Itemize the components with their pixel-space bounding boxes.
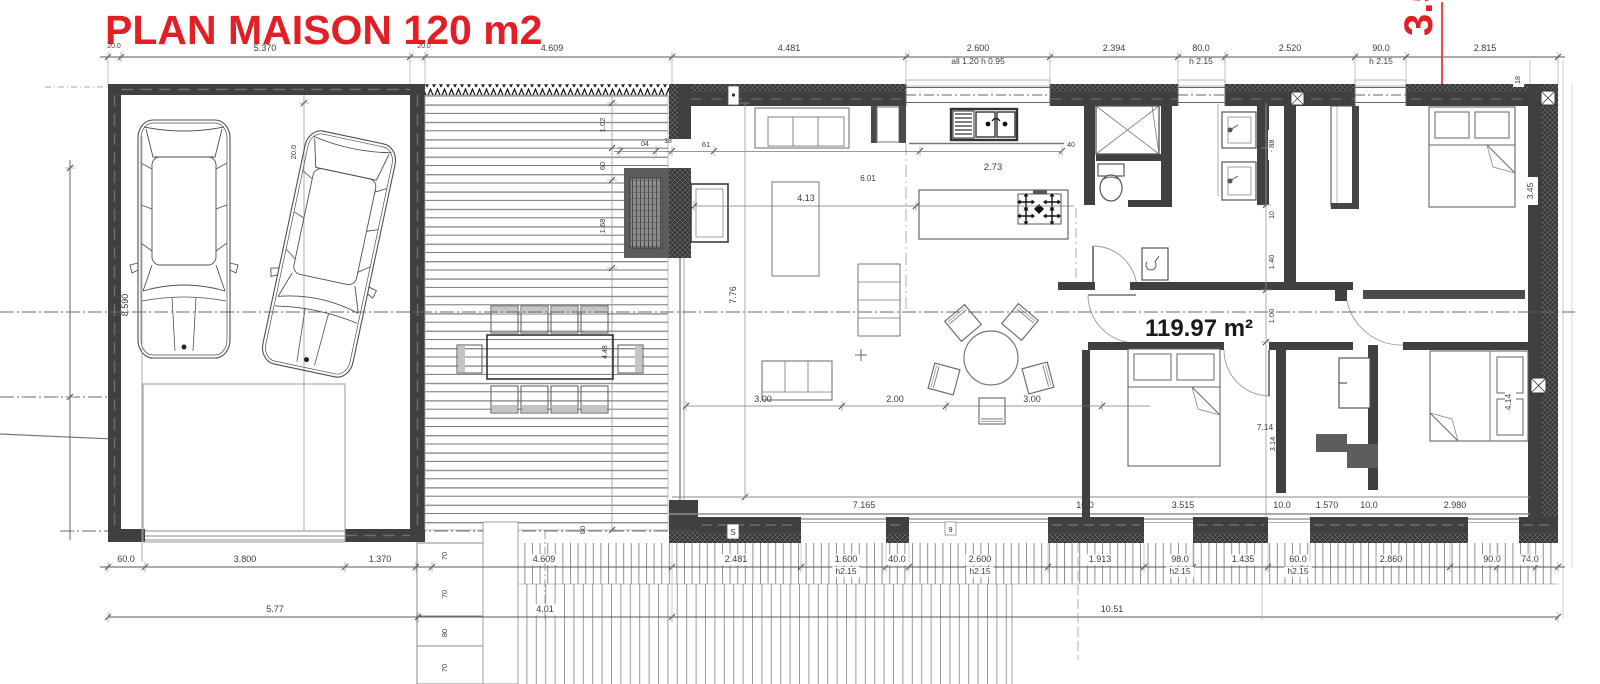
svg-text:2.481: 2.481 xyxy=(725,554,748,564)
svg-text:1.370: 1.370 xyxy=(369,554,392,564)
svg-text:2.980: 2.980 xyxy=(1444,500,1467,510)
svg-text:40.0: 40.0 xyxy=(888,554,906,564)
svg-text:4.14: 4.14 xyxy=(1503,393,1513,410)
svg-text:10.0: 10.0 xyxy=(1360,500,1378,510)
svg-text:3.00: 3.00 xyxy=(754,394,772,404)
svg-text:3.00: 3.00 xyxy=(1023,394,1041,404)
svg-text:10: 10 xyxy=(1269,342,1276,350)
svg-text:40: 40 xyxy=(1067,142,1075,149)
svg-text:5.77: 5.77 xyxy=(266,604,284,614)
svg-text:3.800: 3.800 xyxy=(234,554,257,564)
svg-text:80: 80 xyxy=(578,526,587,534)
svg-text:2.600: 2.600 xyxy=(969,554,992,564)
svg-text:3.515: 3.515 xyxy=(1172,500,1195,510)
svg-text:98.0: 98.0 xyxy=(1171,554,1189,564)
svg-text:7.14: 7.14 xyxy=(1257,422,1274,432)
svg-text:60.0: 60.0 xyxy=(117,554,135,564)
svg-text:h2.15: h2.15 xyxy=(835,566,857,576)
svg-text:10.51: 10.51 xyxy=(1101,604,1124,614)
svg-text:9: 9 xyxy=(948,525,952,534)
svg-text:04: 04 xyxy=(641,141,649,148)
svg-text:PLAN MAISON 120 m2: PLAN MAISON 120 m2 xyxy=(105,7,542,53)
svg-text:h2.15: h2.15 xyxy=(969,566,991,576)
svg-text:1.435: 1.435 xyxy=(1232,554,1255,564)
svg-text:4.609: 4.609 xyxy=(541,43,564,53)
svg-text:1.913: 1.913 xyxy=(1089,554,1112,564)
svg-text:18: 18 xyxy=(664,138,672,145)
svg-text:10: 10 xyxy=(1269,211,1276,219)
svg-text:2.860: 2.860 xyxy=(1380,554,1403,564)
svg-text:70: 70 xyxy=(440,664,449,672)
svg-text:1.00: 1.00 xyxy=(1267,309,1276,324)
svg-text:h2.15: h2.15 xyxy=(1287,566,1309,576)
svg-text:10.0: 10.0 xyxy=(1273,500,1291,510)
svg-text:1.40: 1.40 xyxy=(1267,255,1276,270)
svg-text:h 2.15: h 2.15 xyxy=(1189,56,1213,66)
svg-text:18: 18 xyxy=(1515,76,1522,84)
svg-text:4.48: 4.48 xyxy=(602,345,609,359)
svg-text:3.45: 3.45 xyxy=(1525,182,1535,199)
svg-text:4.13: 4.13 xyxy=(797,193,815,203)
svg-text:60: 60 xyxy=(598,162,607,170)
svg-text:61: 61 xyxy=(702,140,710,149)
svg-text:2.73: 2.73 xyxy=(984,162,1003,173)
svg-text:3.5: 3.5 xyxy=(1397,0,1441,36)
svg-text:1.02: 1.02 xyxy=(598,118,607,133)
svg-text:8.590: 8.590 xyxy=(120,294,130,317)
svg-text:4.609: 4.609 xyxy=(533,554,556,564)
svg-text:h2.15: h2.15 xyxy=(1169,566,1191,576)
svg-text:2.600: 2.600 xyxy=(967,43,990,53)
svg-text:2.394: 2.394 xyxy=(1103,43,1126,53)
svg-text:90.0: 90.0 xyxy=(1372,43,1390,53)
svg-text:90: 90 xyxy=(1085,196,1093,203)
svg-text:all 1.20 h 0.95: all 1.20 h 0.95 xyxy=(951,56,1005,66)
svg-text:1.570: 1.570 xyxy=(1316,500,1339,510)
svg-text:90.0: 90.0 xyxy=(1483,554,1501,564)
svg-text:- 88: - 88 xyxy=(1267,140,1276,153)
svg-text:1.68: 1.68 xyxy=(598,219,607,234)
svg-text:20.0: 20.0 xyxy=(417,43,431,50)
svg-text:7.165: 7.165 xyxy=(853,500,876,510)
svg-text:10.0: 10.0 xyxy=(1076,500,1094,510)
svg-text:1.600: 1.600 xyxy=(835,554,858,564)
svg-text:6.01: 6.01 xyxy=(860,174,876,183)
svg-text:80: 80 xyxy=(440,629,449,637)
svg-text:S: S xyxy=(730,528,735,537)
svg-text:4.481: 4.481 xyxy=(778,43,801,53)
svg-text:2.520: 2.520 xyxy=(1279,43,1302,53)
svg-text:h 2.15: h 2.15 xyxy=(1369,56,1393,66)
svg-text:60.0: 60.0 xyxy=(1289,554,1307,564)
svg-text:20.0: 20.0 xyxy=(107,43,121,50)
svg-text:7.76: 7.76 xyxy=(728,286,738,304)
svg-text:119.97 m²: 119.97 m² xyxy=(1145,315,1253,342)
svg-text:70: 70 xyxy=(440,552,449,560)
svg-text:20.0: 20.0 xyxy=(289,145,298,160)
svg-text:70: 70 xyxy=(440,590,449,598)
svg-text:5.370: 5.370 xyxy=(254,43,277,53)
svg-text:2.815: 2.815 xyxy=(1474,43,1497,53)
svg-text:80.0: 80.0 xyxy=(1192,43,1210,53)
svg-text:2.00: 2.00 xyxy=(886,394,904,404)
svg-text:3.14: 3.14 xyxy=(1268,437,1277,452)
